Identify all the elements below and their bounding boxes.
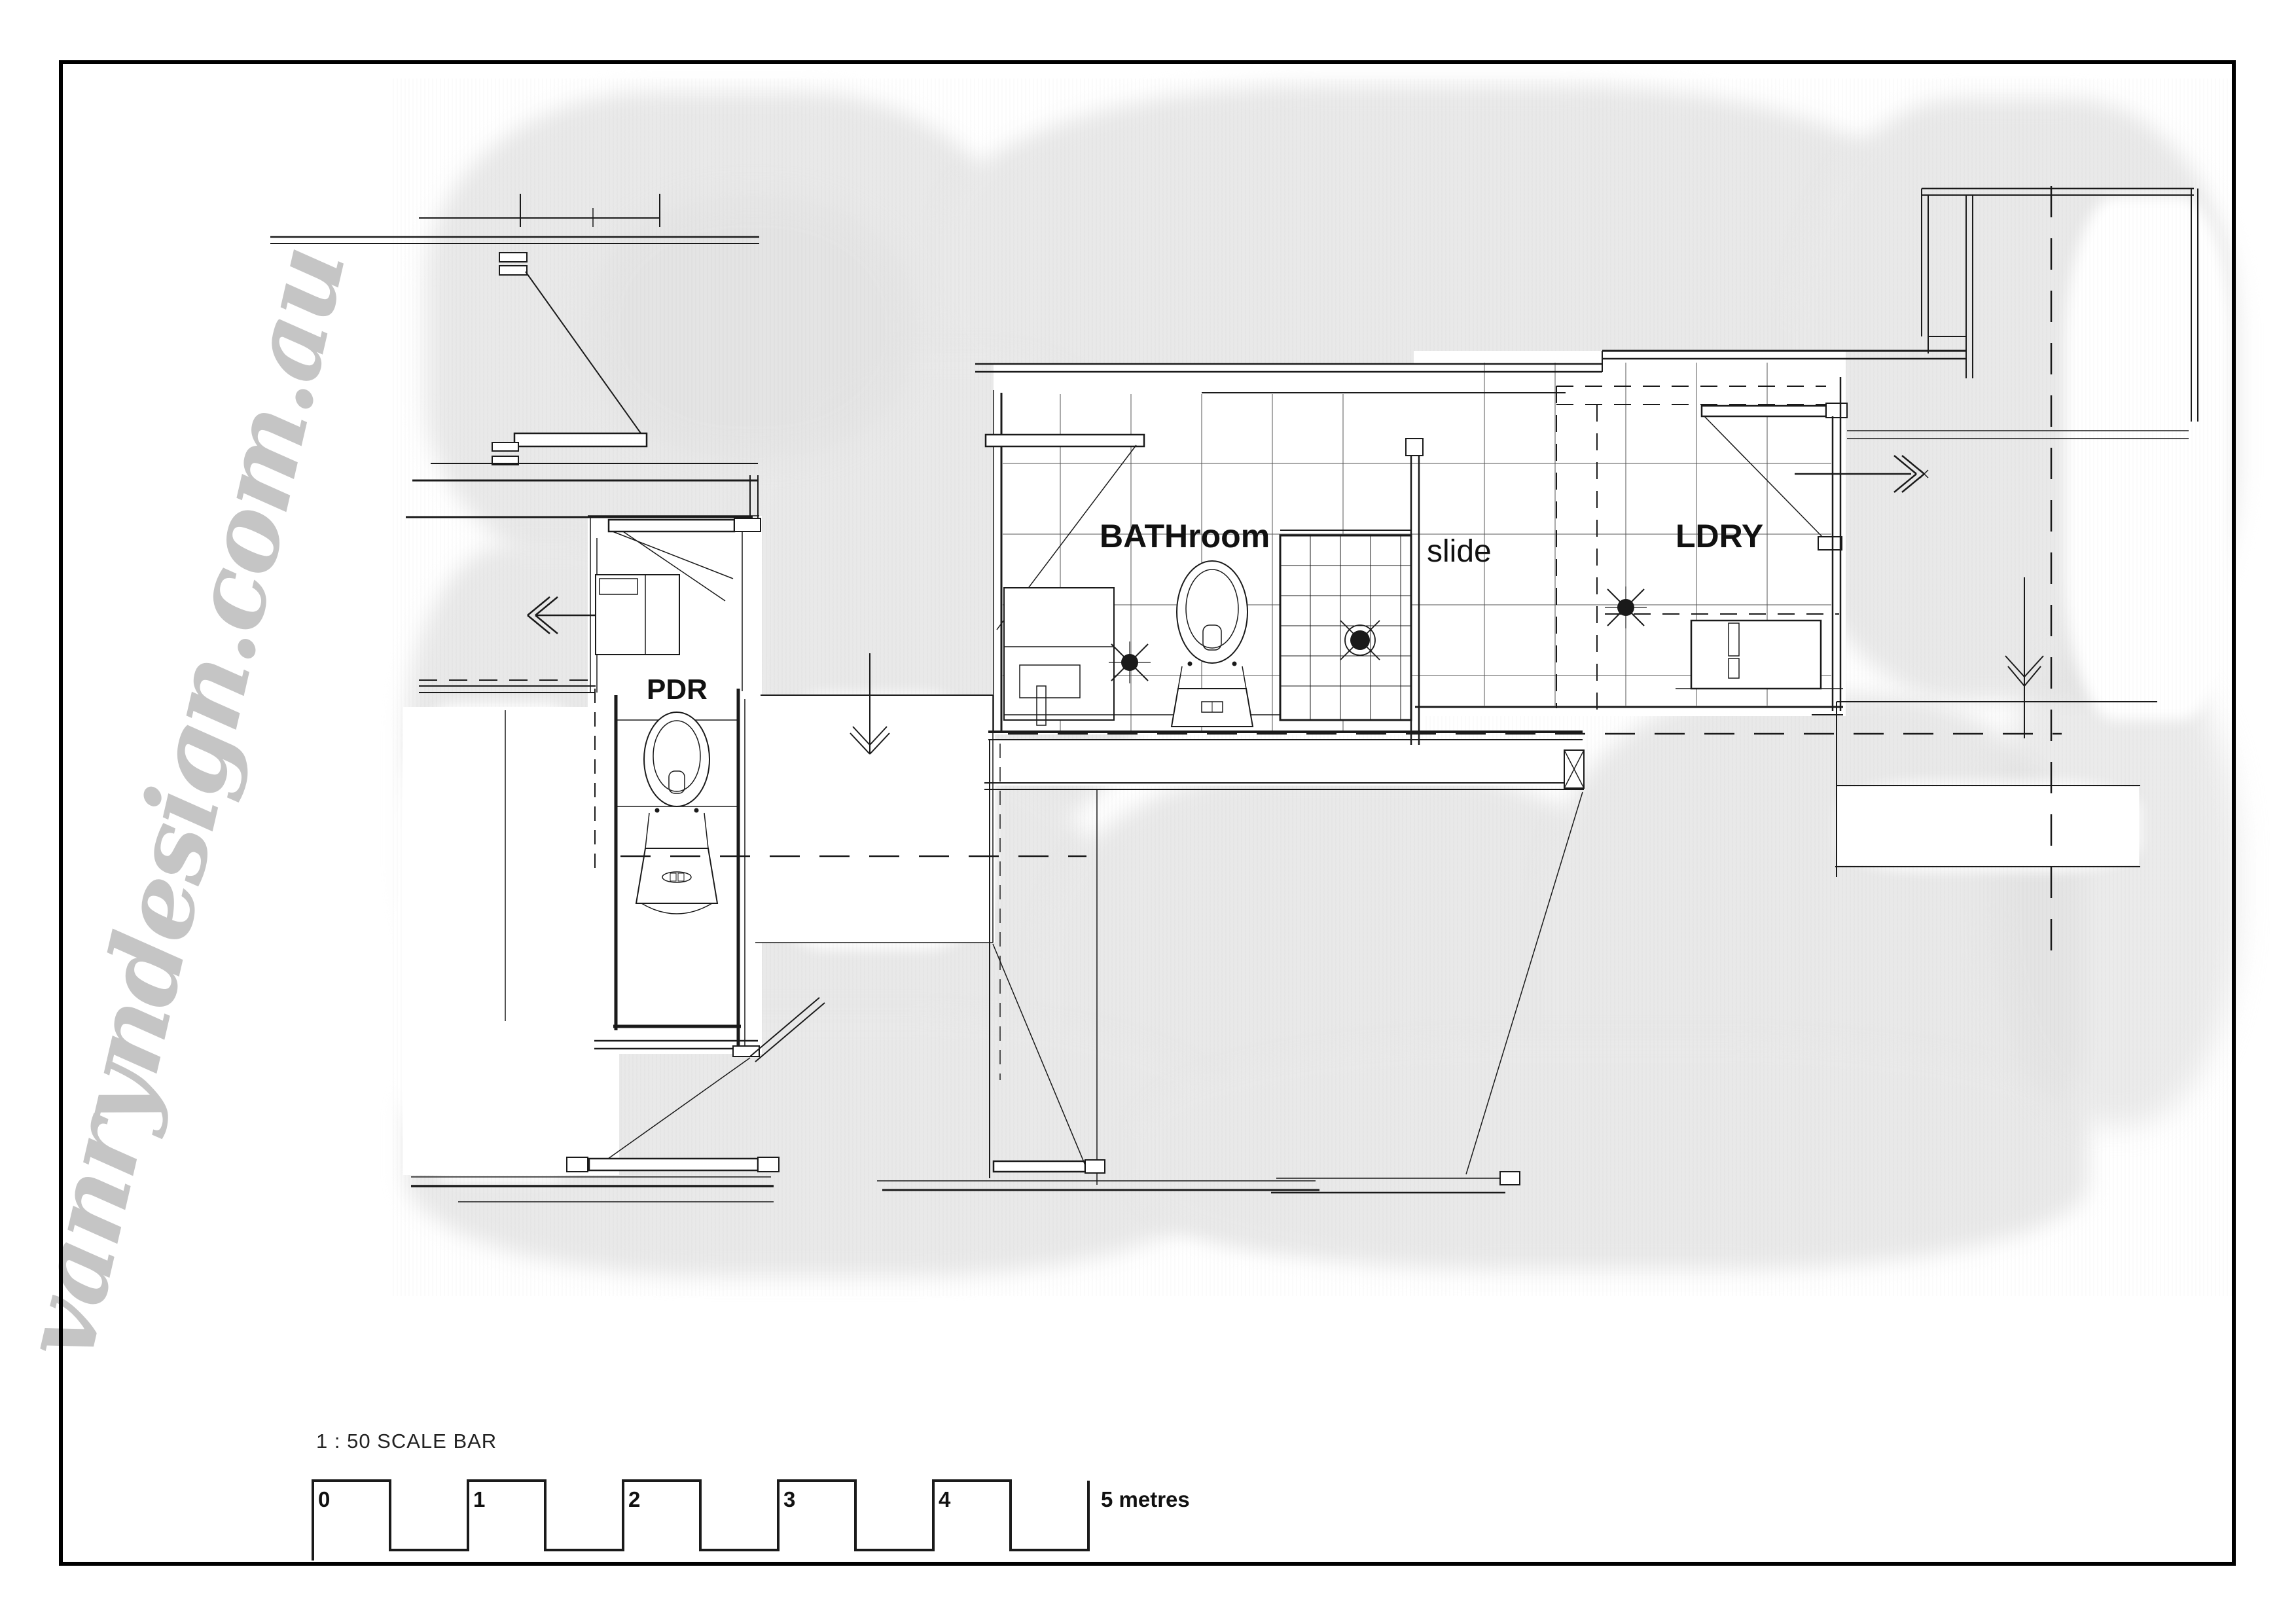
scale-tick-3: 3 (783, 1487, 795, 1511)
floor-plan-svg: BATHroom slide LDRY PDR 1 : 50 SCALE BAR… (0, 0, 2296, 1624)
door-jamb (1818, 537, 1842, 550)
ceiling-light-icon (1605, 586, 1647, 628)
door-leaf (1702, 406, 1826, 416)
powder-room-label: PDR (647, 674, 708, 706)
door-jamb (567, 1157, 588, 1172)
vanity-icon (1004, 588, 1114, 725)
door-leaf (589, 1159, 758, 1170)
door-leaf (994, 1161, 1085, 1172)
ceiling-light-icon (1109, 641, 1151, 683)
door-swing (1466, 792, 1583, 1174)
laundry-label: LDRY (1676, 518, 1763, 554)
door-leaf (755, 1003, 825, 1062)
scale-tick-4: 4 (939, 1487, 951, 1511)
scale-bar-title: 1 : 50 SCALE BAR (316, 1430, 497, 1453)
scale-end-label: 5 metres (1101, 1487, 1190, 1511)
scale-bar-wave (313, 1481, 1088, 1561)
door-jamb (734, 518, 761, 532)
scale-tick-1: 1 (473, 1487, 485, 1511)
laundry-trough-icon (1676, 621, 1843, 689)
door-jamb (1826, 403, 1847, 418)
scale-tick-2: 2 (628, 1487, 640, 1511)
scale-tick-0: 0 (318, 1487, 330, 1511)
door-leaf (986, 435, 1144, 446)
bathroom-label: BATHroom (1100, 518, 1270, 554)
door-jamb (1085, 1160, 1105, 1173)
pdr-vanity-icon (596, 575, 679, 655)
door-jamb (758, 1157, 779, 1172)
down-arrow-icon (2005, 577, 2043, 738)
drawing-page: vanryndesign.com.au (0, 0, 2296, 1624)
door-leaf (609, 520, 734, 532)
door-jamb (1500, 1172, 1520, 1185)
bathroom-toilet-icon (1172, 561, 1253, 727)
scale-bar: 1 : 50 SCALE BAR 0 1 2 3 4 5 metres (313, 1430, 1190, 1561)
door-swing (526, 272, 643, 436)
door-jamb (492, 442, 518, 451)
door-swing (993, 944, 1085, 1165)
slide-label: slide (1427, 534, 1492, 569)
door-jamb (499, 266, 527, 275)
door-jamb (499, 253, 527, 262)
shower-icon (1280, 530, 1411, 720)
post-box (1564, 750, 1584, 788)
door-leaf (514, 433, 647, 446)
